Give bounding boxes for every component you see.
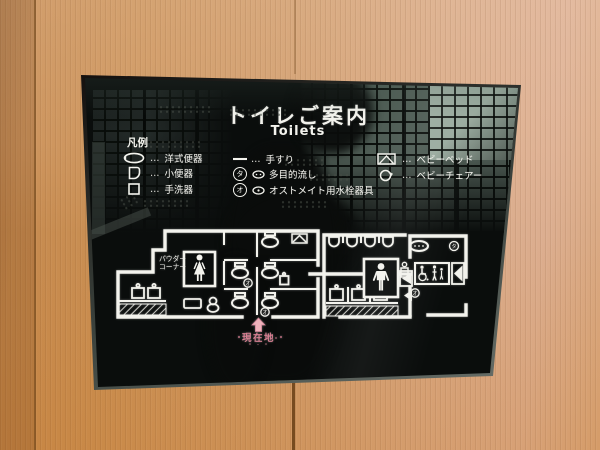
svg-text:パウダー: パウダー <box>159 254 186 263</box>
current-location-arrow <box>252 318 265 332</box>
wood-panel-seam-bottom <box>292 378 295 450</box>
sign-subtitle-english: Toilets <box>166 124 430 139</box>
mens-counter-hatch <box>326 306 398 316</box>
legend-label: オストメイト用水栓器具 <box>269 183 374 197</box>
man-pictogram <box>364 259 398 297</box>
wood-panel-seam-left <box>0 0 36 450</box>
legend-row-handrail: … 手すり <box>233 152 294 166</box>
legend-label: 洋式便器 <box>165 151 203 165</box>
leader-dots: … <box>251 154 262 165</box>
ostomate-fixture-icon <box>251 186 265 195</box>
legend-row-ostomate: オ オストメイト用水栓器具 <box>233 183 374 197</box>
leader-dots: … <box>402 154 413 165</box>
leader-dots: … <box>150 184 161 195</box>
powder-corner-label: パウダー コーナー <box>159 254 186 271</box>
western-toilet-icon <box>122 152 146 164</box>
legend-label: ベビーベッド <box>417 152 474 166</box>
legend-label: 手洗器 <box>165 182 194 196</box>
door-symbol <box>400 263 464 301</box>
legend-row-baby-chair: … ベビーチェアー <box>374 168 482 182</box>
legend-label: 多目的流し <box>269 167 317 181</box>
baby-chair-icon <box>374 169 398 182</box>
braille-dots <box>158 105 214 114</box>
photo-of-toilet-sign: トイレご案内 Toilets 凡例 … 洋式便器 <box>0 0 600 450</box>
multipurpose-sink-mark: タ <box>450 242 459 251</box>
leader-dots: … <box>150 153 161 164</box>
braille-dots <box>228 108 288 117</box>
woman-pictogram <box>184 252 215 286</box>
current-location-marker: 現在地 <box>238 318 282 345</box>
svg-text:オ: オ <box>412 291 417 297</box>
wood-panel-seam-top <box>294 0 296 74</box>
handrail-icon <box>233 157 247 161</box>
powder-counter-hatch <box>118 304 166 315</box>
sign-printed-content: トイレご案内 Toilets 凡例 … 洋式便器 <box>78 72 524 394</box>
baby-bed-symbol <box>292 234 307 243</box>
wheelchair-pictogram <box>419 266 429 281</box>
floor-plan-walls <box>118 231 466 317</box>
parent-and-child-pictogram <box>433 265 443 280</box>
legend-row-urinal: … 小便器 <box>122 166 193 180</box>
leader-dots: … <box>402 170 413 181</box>
current-location-label: 現在地 <box>242 332 275 344</box>
legend-label: ベビーチェアー <box>417 168 483 182</box>
multipurpose-sink-icon <box>251 170 265 179</box>
legend-row-multipurpose-sink: タ 多目的流し <box>233 167 317 181</box>
legend-row-baby-bed: … ベビーベッド <box>374 152 474 166</box>
toilet-floor-plan: オ オ オ タ <box>112 227 492 345</box>
circle-ta-badge: タ <box>233 167 247 181</box>
hand-washbasin-icon <box>122 183 146 195</box>
circle-o-badge: オ <box>233 183 247 197</box>
legend-row-washbasin: … 手洗器 <box>122 182 193 196</box>
svg-text:タ: タ <box>451 243 456 250</box>
legend-heading: 凡例 <box>127 135 148 150</box>
svg-text:オ: オ <box>262 310 267 316</box>
legend-label: 手すり <box>266 152 295 166</box>
legend-label: 小便器 <box>165 166 194 180</box>
braille-dots <box>280 200 328 209</box>
toilet-symbol <box>232 232 278 308</box>
svg-text:オ: オ <box>245 281 250 287</box>
urinal-icon <box>122 166 146 180</box>
leader-dots: … <box>150 168 161 179</box>
toilet-guide-sign: トイレご案内 Toilets 凡例 … 洋式便器 <box>78 72 524 394</box>
braille-dots <box>148 140 203 148</box>
braille-dots <box>142 199 188 207</box>
legend-row-western-toilet: … 洋式便器 <box>122 151 203 165</box>
svg-text:コーナー: コーナー <box>159 263 186 271</box>
baby-bed-icon <box>374 153 398 165</box>
